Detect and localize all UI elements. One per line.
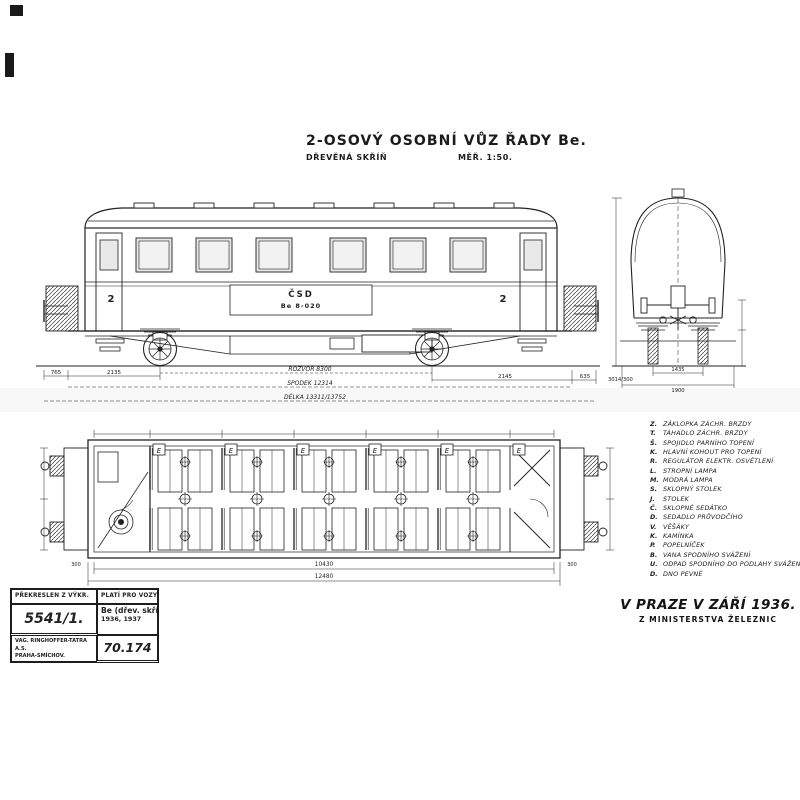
battery-box [362,335,432,352]
vent-label: E [373,447,378,455]
issue-stamp: V PRAZE V ZÁŘÍ 1936. Z MINISTERSTVA ŽELE… [616,597,800,624]
tb-series-cell: Be (dřev. skříň) 1936, 1937 [97,604,158,635]
dim-end-right: 300 [567,562,577,568]
legend-item: L. STROPNÍ LAMPA [650,467,800,476]
drawing-canvas: 2 2 ČSD Be 8-020 [0,0,800,800]
legend-label: ODPAD SPODNÍHO DO PODLAHY SVÁŽENÍ [663,560,800,569]
roof-profile [85,208,557,228]
legend-label: VĚŠÁKY [663,523,689,532]
legend-label: SEDADLO PRŮVODČÍHO [663,513,743,522]
dim-2145: 2145 [498,374,512,380]
title-block: PŘEKRESLEN Z VÝKR. PLATÍ PRO VOZY: 5541/… [10,588,159,663]
compartment [366,448,428,550]
legend-key: U. [650,560,663,569]
dim-635: 635 [580,374,591,380]
legend-key: J. [650,495,663,504]
legend-key: D. [650,513,663,522]
legend-item: V. VĚŠÁKY [650,523,800,532]
dim-gauge: 1435 [671,367,684,373]
legend-label: HLAVNÍ KOHOUT PRO TOPENÍ [663,448,762,457]
dim-width: 1900 [671,388,684,394]
dim-underframe: SPODEK 12314 [287,380,333,387]
legend-key: P. [650,541,663,550]
truss-rods [110,336,520,354]
plan-top-dims [94,430,554,438]
roof-lamp-stack [672,189,684,197]
legend-key: K. [650,532,663,541]
compartment [222,448,284,550]
legend-label: DNO PEVNÉ [663,570,703,579]
legend-item: D. SEDADLO PRŮVODČÍHO [650,513,800,522]
legend-key: S. [650,485,663,494]
end-view: 3014/300 1435 1900 [608,189,746,394]
tb-maker-name: VAG. RINGHOFFER-TATRA A.S. [15,638,93,653]
vent-label: E [517,447,522,455]
legend-key: Č. [650,504,663,513]
legend-key: B. [650,551,663,560]
dim-length: DÉLKA 13311/13752 [284,393,346,401]
legend-item: M. MODRÁ LAMPA [650,476,800,485]
legend-label: REGULÁTOR ELEKTR. OSVĚTLENÍ [663,457,773,466]
legend-item: D. DNO PEVNÉ [650,570,800,579]
side-elevation: 2 2 ČSD Be 8-020 [36,203,600,401]
legend-label: SPOJIDLO PARNÍHO TOPENÍ [663,439,754,448]
legend-item: B. VANA SPODNÍHO SVÁŽENÍ [650,551,800,560]
compartment [150,448,212,550]
legend-item: K. HLAVNÍ KOHOUT PRO TOPENÍ [650,448,800,457]
legend-item: S. SKLOPNÝ STOLEK [650,485,800,494]
tb-valid-label: PLATÍ PRO VOZY: [97,589,158,604]
legend-label: STROPNÍ LAMPA [663,467,717,476]
vestibule-right [510,446,550,552]
issuer: Z MINISTERSTVA ŽELEZNIC [616,615,800,624]
legend-key: T. [650,429,663,438]
dim-wheelbase: ROZVOR 8300 [288,366,331,373]
tb-maker-cell: VAG. RINGHOFFER-TATRA A.S. PRAHA-SMÍCHOV… [11,635,97,662]
car-number: Be 8-020 [281,302,321,310]
dim-2135: 2135 [107,370,121,376]
vent-boxes: E E E E E E [153,444,525,455]
plan-end-right [560,448,607,550]
dim-10430: 10430 [315,562,334,568]
dim-end-left: 300 [71,562,81,568]
legend-key: R. [650,457,663,466]
compartment [438,448,500,550]
buffer-left [44,286,78,331]
tb-redrawn-label: PŘEKRESLEN Z VÝKR. [11,589,97,604]
buffer-right [564,286,598,331]
tb-file-number: 70.174 [97,635,158,661]
legend: Z. ZÁKLOPKA ZÁCHR. BRZDY T. TÁHADLO ZÁCH… [650,420,800,579]
vent-label: E [229,447,234,455]
compartment [294,448,356,550]
vent-label: E [445,447,450,455]
vent-label: E [301,447,306,455]
dim-12480: 12480 [315,574,334,580]
brake-cylinder [330,338,354,349]
tb-years: 1936, 1937 [101,616,154,623]
legend-key: K. [650,448,663,457]
tb-maker-city: PRAHA-SMÍCHOV. [15,653,93,661]
drawing-sheet: 2-OSOVÝ OSOBNÍ VŮZ ŘADY Be. DŘEVĚNÁ SKŘÍ… [0,0,800,800]
legend-key: V. [650,523,663,532]
legend-label: ZÁKLOPKA ZÁCHR. BRZDY [663,420,752,429]
class-mark-right: 2 [500,294,507,305]
owner-mark: ČSD [288,288,314,300]
tb-drawing-number: 5541/1. [11,604,97,634]
legend-key: Z. [650,420,663,429]
legend-item: J. STOLEK [650,495,800,504]
coupling [641,286,715,330]
stove-area [98,446,150,552]
vent-label: E [157,447,162,455]
legend-item: T. TÁHADLO ZÁCHR. BRZDY [650,429,800,438]
legend-label: SKLOPNÝ STOLEK [663,485,722,494]
plan-end-left [41,448,88,550]
legend-key: Š. [650,439,663,448]
floor-plan: E E E E E E 10430 12480 300 300 [40,430,614,586]
legend-item: P. POPELNÍČEK [650,541,800,550]
legend-label: MODRÁ LAMPA [663,476,713,485]
legend-item: Z. ZÁKLOPKA ZÁCHR. BRZDY [650,420,800,429]
dim-3014-300: 3014/300 [608,377,633,383]
roof-ventilators [134,203,514,208]
legend-item: Š. SPOJIDLO PARNÍHO TOPENÍ [650,439,800,448]
legend-item: U. ODPAD SPODNÍHO DO PODLAHY SVÁŽENÍ [650,560,800,569]
legend-label: TÁHADLO ZÁCHR. BRZDY [663,429,748,438]
legend-label: STOLEK [663,495,689,504]
legend-key: D. [650,570,663,579]
class-mark-left: 2 [108,294,115,305]
place-date: V PRAZE V ZÁŘÍ 1936. [616,597,800,613]
legend-label: POPELNÍČEK [663,541,705,550]
dim-765: 765 [51,370,62,376]
legend-key: M. [650,476,663,485]
legend-key: L. [650,467,663,476]
legend-item: R. REGULÁTOR ELEKTR. OSVĚTLENÍ [650,457,800,466]
legend-label: VANA SPODNÍHO SVÁŽENÍ [663,551,751,560]
side-windows [136,238,486,272]
